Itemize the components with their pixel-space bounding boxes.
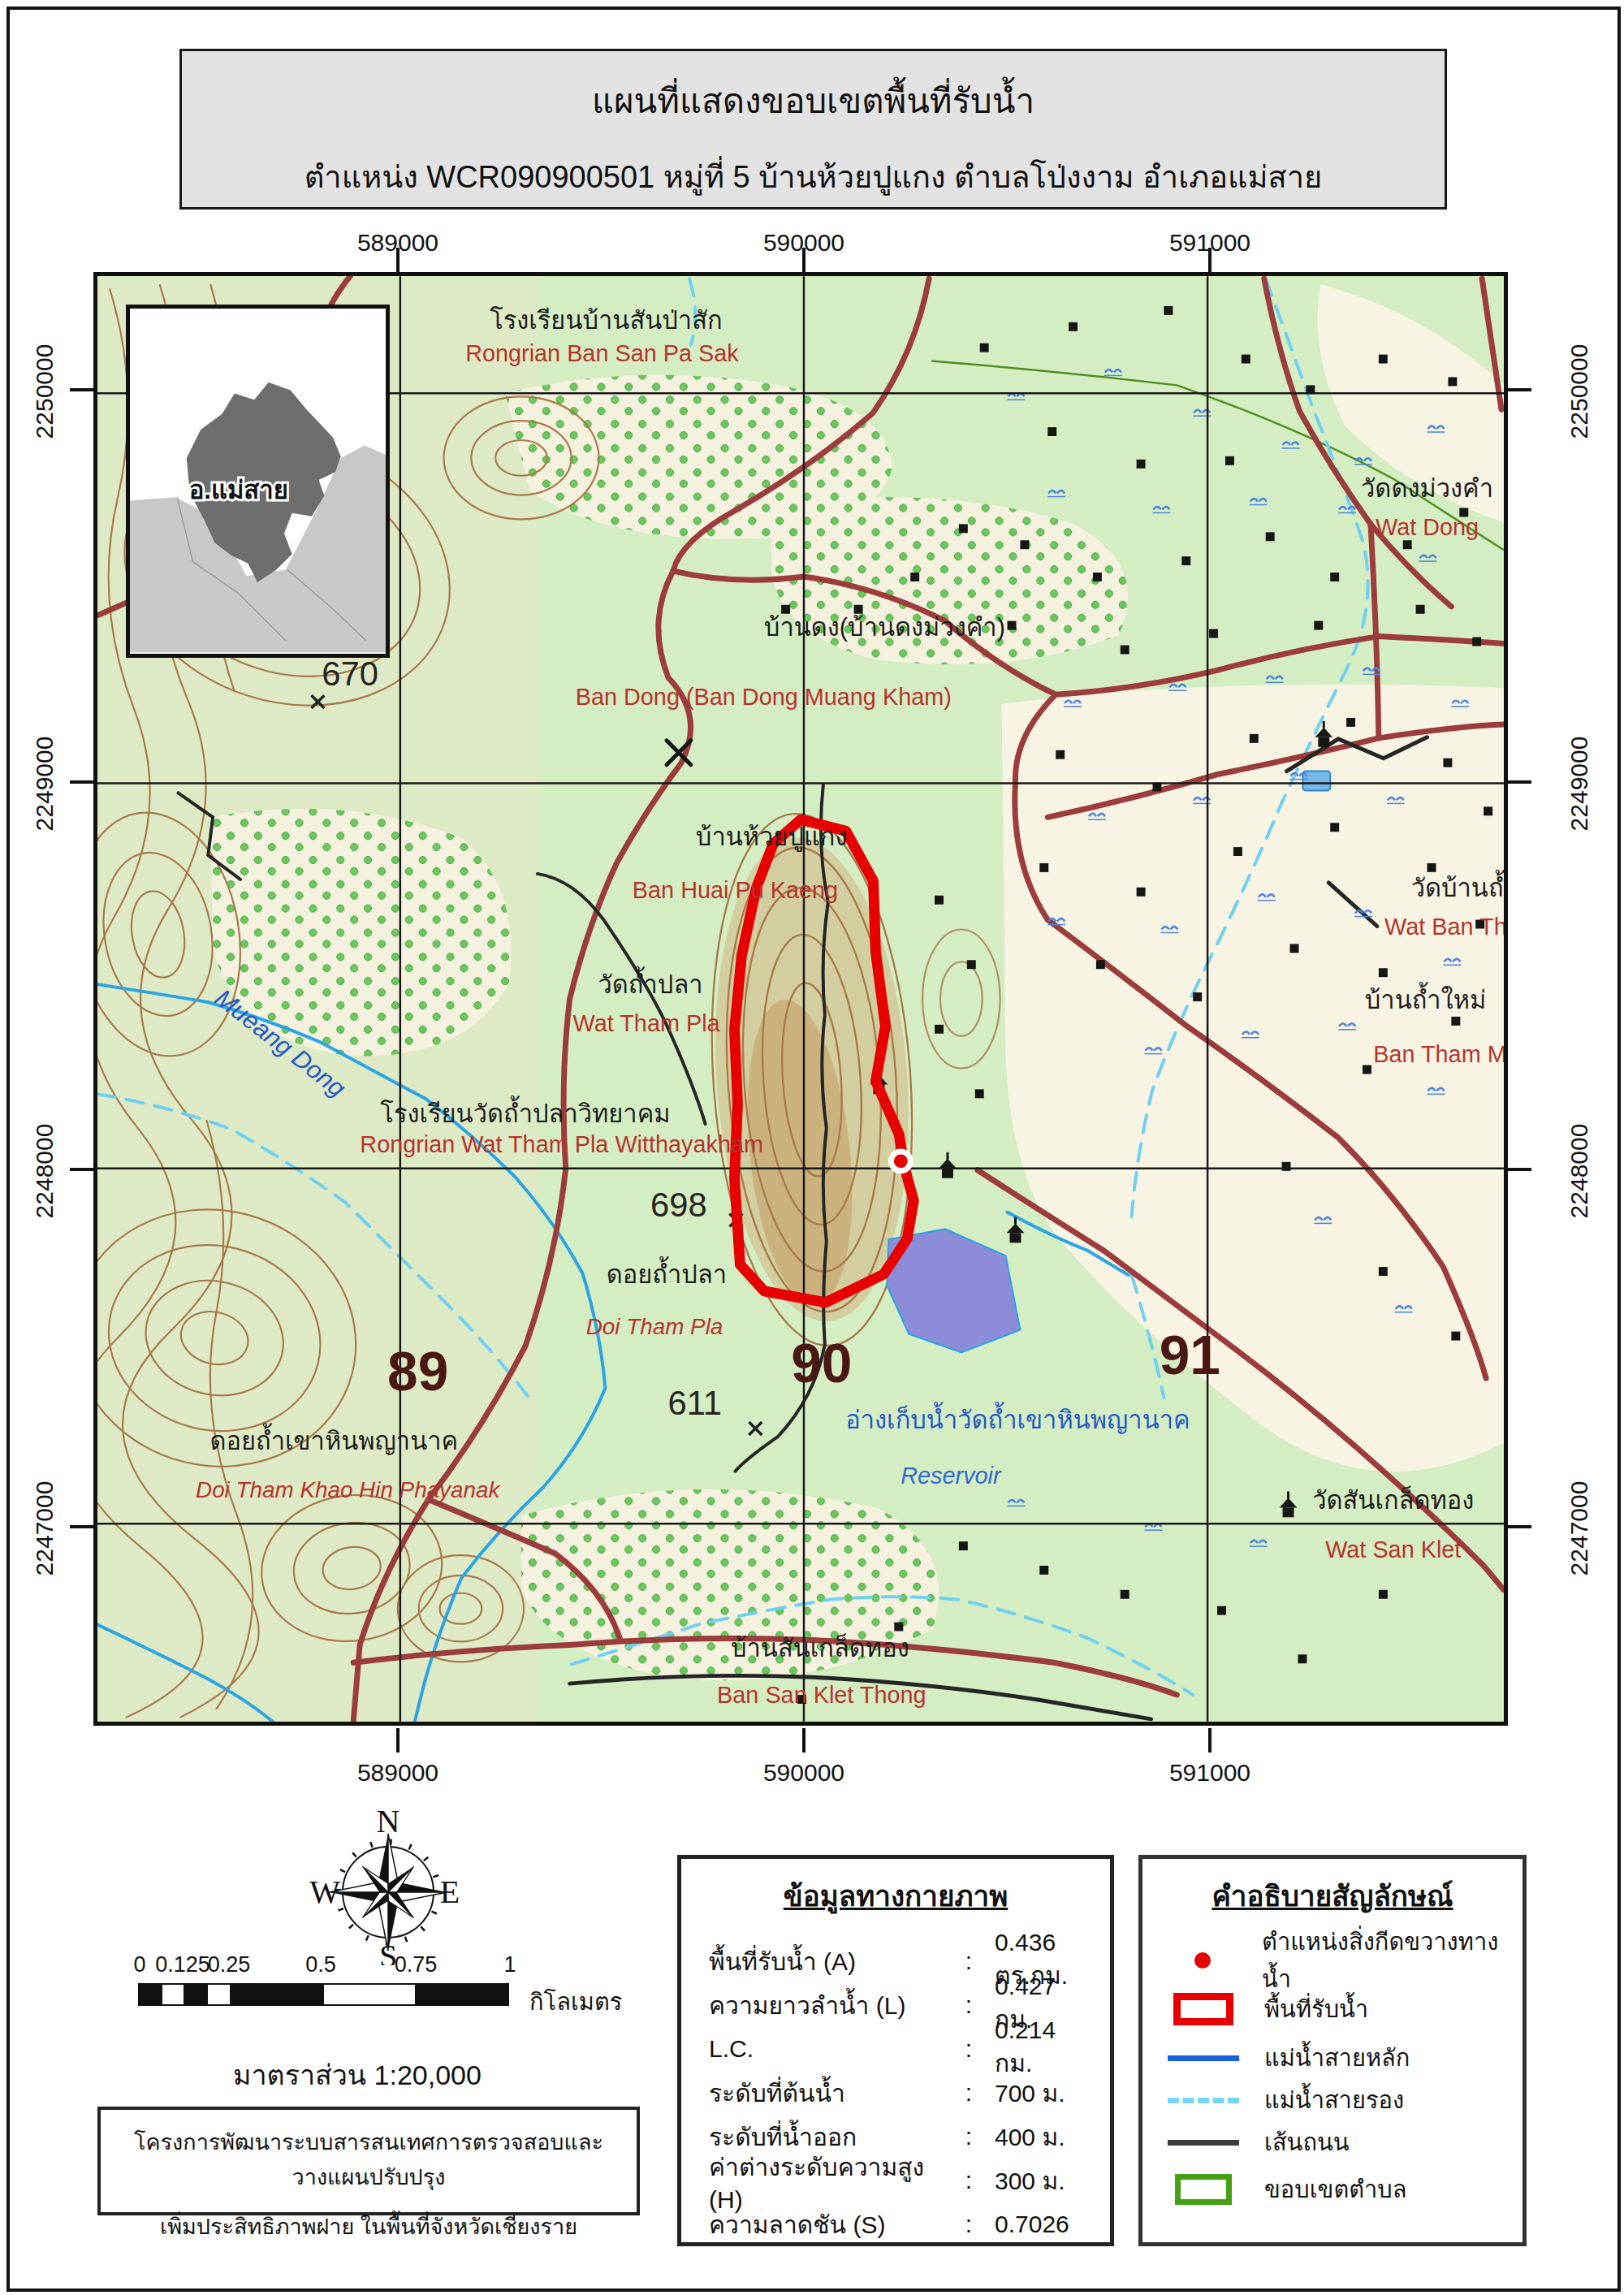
scale-ratio-text: มาตราส่วน 1:20,000 (187, 2053, 528, 2097)
label-bansanklet-en: Ban San Klet Thong (717, 1682, 926, 1708)
row-value: 400 ม. (985, 2118, 1094, 2156)
data-row-height-difference: ค่าต่างระดับความสูง (H) : 300 ม. (709, 2159, 1094, 2202)
legend-item-obstruction: ตำแหน่งสิ่งกีดขวางทางน้ำ (1142, 1939, 1522, 1982)
grid-tick (1208, 248, 1212, 272)
label-watthampla-th: วัดถ้ำปลา (598, 966, 703, 999)
pond (1302, 771, 1330, 791)
row-colon: : (952, 1991, 985, 2019)
row-colon: : (952, 2035, 985, 2063)
row-label: ระดับที่ต้นน้ำ (709, 2074, 952, 2112)
label-huaipukaeng-th: บ้านห้วยปูแกง (696, 823, 848, 852)
compass-e: E (440, 1874, 460, 1910)
watershed-area-icon (1173, 1993, 1233, 2025)
label-school2-en: Rongrian Wat Tham Pla Witthayakham (360, 1131, 763, 1157)
label-school1-th: โรงเรียนบ้านสันป่าสัก (490, 306, 722, 335)
label-bansanklet-th: บ้านสันเกล็ดทอง (731, 1633, 909, 1662)
label-grid-90: 90 (791, 1333, 852, 1394)
label-bandong-th: บ้านดง(บ้านดงม่วงคำ) (764, 613, 1005, 642)
legend-item-secondary-river: แม่น้ำสายรอง (1142, 2079, 1522, 2121)
row-value: 0.214 กม. (985, 2016, 1094, 2082)
grid-tick (396, 1728, 400, 1753)
map-title: แผนที่แสดงขอบเขตพื้นที่รับน้ำ (182, 74, 1445, 127)
label-reservoir-th: อ่างเก็บน้ำวัดถ้ำเขาหินพญานาค (845, 1402, 1190, 1434)
scalebar-tick-025: 0.25 (192, 1952, 266, 1977)
compass-rose: N E S W (291, 1811, 486, 1965)
label-watthampla-en: Wat Tham Pla (573, 1010, 721, 1036)
label-watsanklet-th: วัดสันเกล็ดทอง (1312, 1485, 1474, 1515)
row-label: ความยาวลำน้ำ (L) (709, 1986, 952, 2025)
grid-tick (1507, 388, 1531, 391)
northing-label-right-2247000: 2247000 (1566, 1463, 1593, 1593)
row-colon: : (952, 2167, 985, 2194)
northing-label-left-2248000: 2248000 (31, 1106, 58, 1236)
label-doikhaohin-th: ดอยถ้ำเขาหินพญานาค (209, 1423, 458, 1455)
row-colon: : (952, 2123, 985, 2150)
label-doithampla-en: Doi Tham Pla (586, 1314, 723, 1339)
label-watban-th: วัดบ้านถ้ำ (1411, 870, 1504, 902)
inset-canvas: อ.แม่สาย (130, 309, 386, 654)
grid-tick (802, 248, 806, 272)
row-label: ความลาดชัน (S) (709, 2206, 952, 2244)
easting-label-bottom-589000: 589000 (333, 1759, 463, 1787)
inset-district-map: อ.แม่สาย (126, 305, 390, 658)
obstruction-point-icon (1194, 1952, 1211, 1969)
northing-label-right-2250000: 2250000 (1566, 326, 1593, 456)
label-watdong-en: Wat Dong (1376, 514, 1479, 540)
scalebar-tick-1: 1 (473, 1952, 546, 1977)
grid-tick (1507, 1168, 1531, 1171)
grid-tick (70, 1168, 94, 1171)
title-box: แผนที่แสดงขอบเขตพื้นที่รับน้ำ ตำแหน่ง WC… (179, 49, 1447, 210)
compass-w: W (309, 1874, 340, 1910)
tambon-boundary-icon (1175, 2174, 1232, 2205)
northing-label-right-2249000: 2249000 (1566, 719, 1593, 849)
scalebar-tick-075: 0.75 (379, 1952, 452, 1977)
label-elev-670: 670 (322, 655, 378, 693)
grid-tick (802, 1728, 806, 1753)
row-label: L.C. (709, 2035, 952, 2063)
legend-item-main-river: แม่น้ำสายหลัก (1142, 2037, 1522, 2079)
physical-data-title: ข้อมูลทางกายภาพ (681, 1874, 1110, 1918)
data-row-lc: L.C. : 0.214 กม. (709, 2027, 1094, 2071)
northing-label-left-2247000: 2247000 (31, 1463, 58, 1593)
data-row-head-elevation: ระดับที่ต้นน้ำ : 700 ม. (709, 2071, 1094, 2115)
label-elev-698: 698 (650, 1186, 707, 1224)
label-huaipukaeng-en: Ban Huai Pu Kaeng (633, 877, 838, 903)
legend-item-tambon-boundary: ขอบเขตตำบล (1142, 2163, 1522, 2215)
grid-tick (70, 1525, 94, 1528)
label-watdong-th: วัดดงม่วงคำ (1361, 474, 1493, 503)
legend-items: ตำแหน่งสิ่งกีดขวางทางน้ำ พื้นที่รับน้ำ แ… (1142, 1939, 1522, 2215)
grid-tick (1507, 1525, 1531, 1528)
legend-title: คำอธิบายสัญลักษณ์ (1142, 1874, 1522, 1918)
grid-tick (1208, 1728, 1212, 1753)
scale-bar (138, 1983, 520, 2008)
map-subtitle-location: ตำแหน่ง WCR090900501 หมู่ที่ 5 บ้านห้วยป… (182, 152, 1445, 201)
label-bandong-en: Ban Dong (Ban Dong Muang Kham) (576, 684, 952, 710)
label-watban-en: Wat Ban Th (1384, 914, 1504, 940)
row-value: 700 ม. (985, 2074, 1094, 2112)
row-value: 0.7026 (985, 2211, 1094, 2238)
northing-label-left-2249000: 2249000 (31, 719, 58, 849)
physical-data-box: ข้อมูลทางกายภาพ พื้นที่รับน้ำ (A) : 0.43… (677, 1855, 1114, 2246)
easting-label-bottom-590000: 590000 (739, 1759, 869, 1787)
inset-district-label: อ.แม่สาย (189, 476, 288, 504)
label-grid-89: 89 (387, 1341, 448, 1402)
label-doikhaohin-en: Doi Tham Khao Hin Phayanak (196, 1477, 501, 1502)
compass-n: N (377, 1811, 400, 1839)
legend-box: คำอธิบายสัญลักษณ์ ตำแหน่งสิ่งกีดขวางทางน… (1138, 1855, 1527, 2246)
legend-label: ตำแหน่งสิ่งกีดขวางทางน้ำ (1262, 1923, 1522, 1998)
physical-data-rows: พื้นที่รับน้ำ (A) : 0.436 ตร.กม. ความยาว… (709, 1939, 1094, 2246)
label-school2-th: โรงเรียนวัดถ้ำปลาวิทยาคม (380, 1096, 670, 1128)
grid-tick (70, 780, 94, 784)
northing-label-right-2248000: 2248000 (1566, 1106, 1593, 1236)
label-school1-en: Rongrian Ban San Pa Sak (465, 340, 739, 366)
legend-item-road: เส้นถนน (1142, 2121, 1522, 2163)
row-value: 300 ม. (985, 2162, 1094, 2200)
data-row-slope: ความลาดชัน (S) : 0.7026 (709, 2202, 1094, 2246)
map-document-page: แผนที่แสดงขอบเขตพื้นที่รับน้ำ ตำแหน่ง WC… (0, 0, 1624, 2295)
row-colon: : (952, 2079, 985, 2107)
label-doithampla-th: ดอยถ้ำปลา (607, 1256, 727, 1289)
label-banthammai-th: บ้านถ้ำใหม่ (1365, 982, 1487, 1014)
grid-tick (70, 388, 94, 391)
project-description-box: โครงการพัฒนาระบบสารสนเทศการตรวจสอบและวาง… (97, 2107, 640, 2215)
main-river-icon (1168, 2055, 1239, 2061)
scalebar-tick-05: 0.5 (284, 1952, 357, 1977)
row-label: พื้นที่รับน้ำ (A) (709, 1943, 952, 1981)
label-grid-91: 91 (1160, 1325, 1220, 1385)
road-line-icon (1168, 2140, 1239, 2146)
legend-label: เส้นถนน (1264, 2124, 1350, 2161)
label-reservoir-en: Reservoir (901, 1463, 1002, 1489)
scalebar-unit: กิโลเมตร (529, 1983, 622, 2021)
obstruction-point-marker (891, 1152, 910, 1171)
grid-tick (396, 248, 400, 272)
legend-label: แม่น้ำสายรอง (1264, 2081, 1404, 2119)
easting-label-bottom-591000: 591000 (1145, 1759, 1275, 1787)
row-label: ค่าต่างระดับความสูง (H) (709, 2148, 952, 2214)
secondary-river-icon (1168, 2098, 1239, 2103)
row-colon: : (952, 1947, 985, 1975)
label-watsanklet-en: Wat San Klet (1325, 1536, 1461, 1562)
project-line1: โครงการพัฒนาระบบสารสนเทศการตรวจสอบและวาง… (101, 2124, 637, 2194)
grid-tick (1507, 780, 1531, 784)
label-banthammai-en: Ban Tham M (1373, 1041, 1504, 1067)
legend-label: ขอบเขตตำบล (1264, 2171, 1407, 2208)
legend-label: พื้นที่รับน้ำ (1264, 1990, 1368, 2028)
label-elev-611: 611 (667, 1384, 722, 1422)
project-line2: เพิ่มประสิทธิภาพฝาย ในพื้นที่จังหวัดเชีย… (101, 2209, 637, 2244)
northing-label-left-2250000: 2250000 (31, 326, 58, 456)
legend-label: แม่น้ำสายหลัก (1264, 2039, 1410, 2077)
row-colon: : (952, 2211, 985, 2238)
